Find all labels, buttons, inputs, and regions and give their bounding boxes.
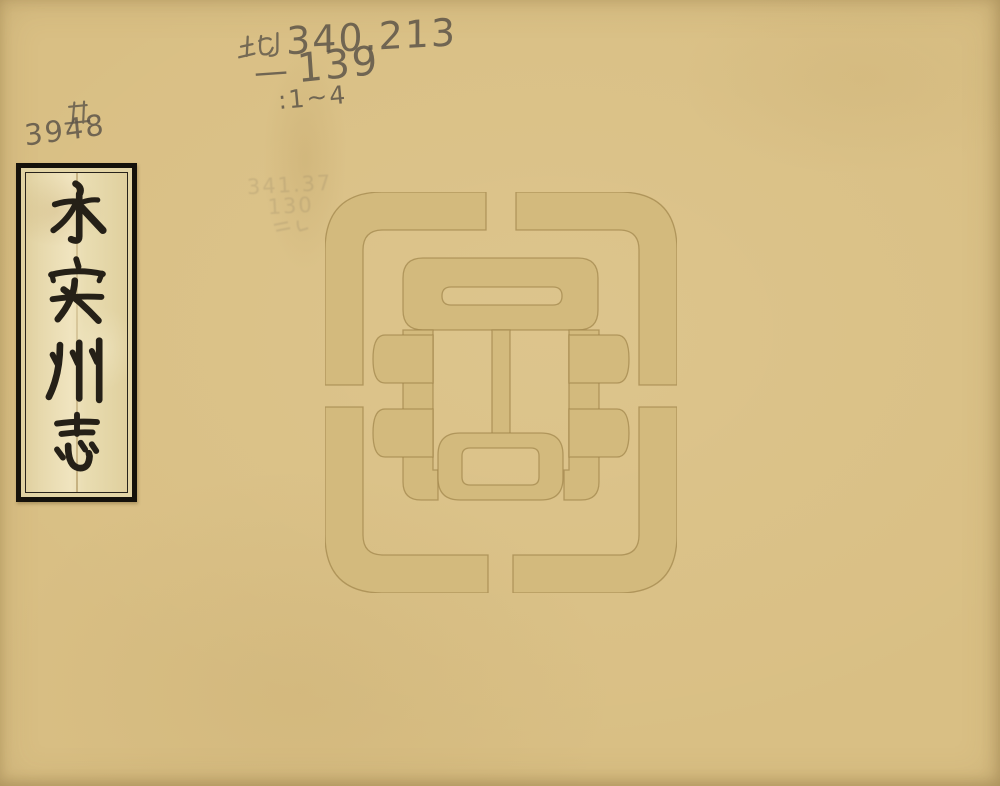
- title-char-an: [40, 256, 114, 332]
- title-char-zhi: [40, 410, 114, 486]
- pencil-corner-number: 3948: [23, 107, 107, 152]
- pencil-volume-range: :1~4: [277, 80, 348, 115]
- library-logo-watermark: [325, 192, 677, 593]
- spine-label: [16, 163, 137, 502]
- erased-line-3-glyph: [271, 217, 312, 235]
- book-cover-scan: 340.213 — 139 :1~4 3948 341.37 130: [0, 0, 1000, 786]
- spine-label-paper: [25, 172, 128, 493]
- erased-pencil-marks: 341.37 130: [246, 173, 335, 240]
- title-char-yong: [40, 179, 114, 255]
- title-char-zhou: [40, 333, 114, 409]
